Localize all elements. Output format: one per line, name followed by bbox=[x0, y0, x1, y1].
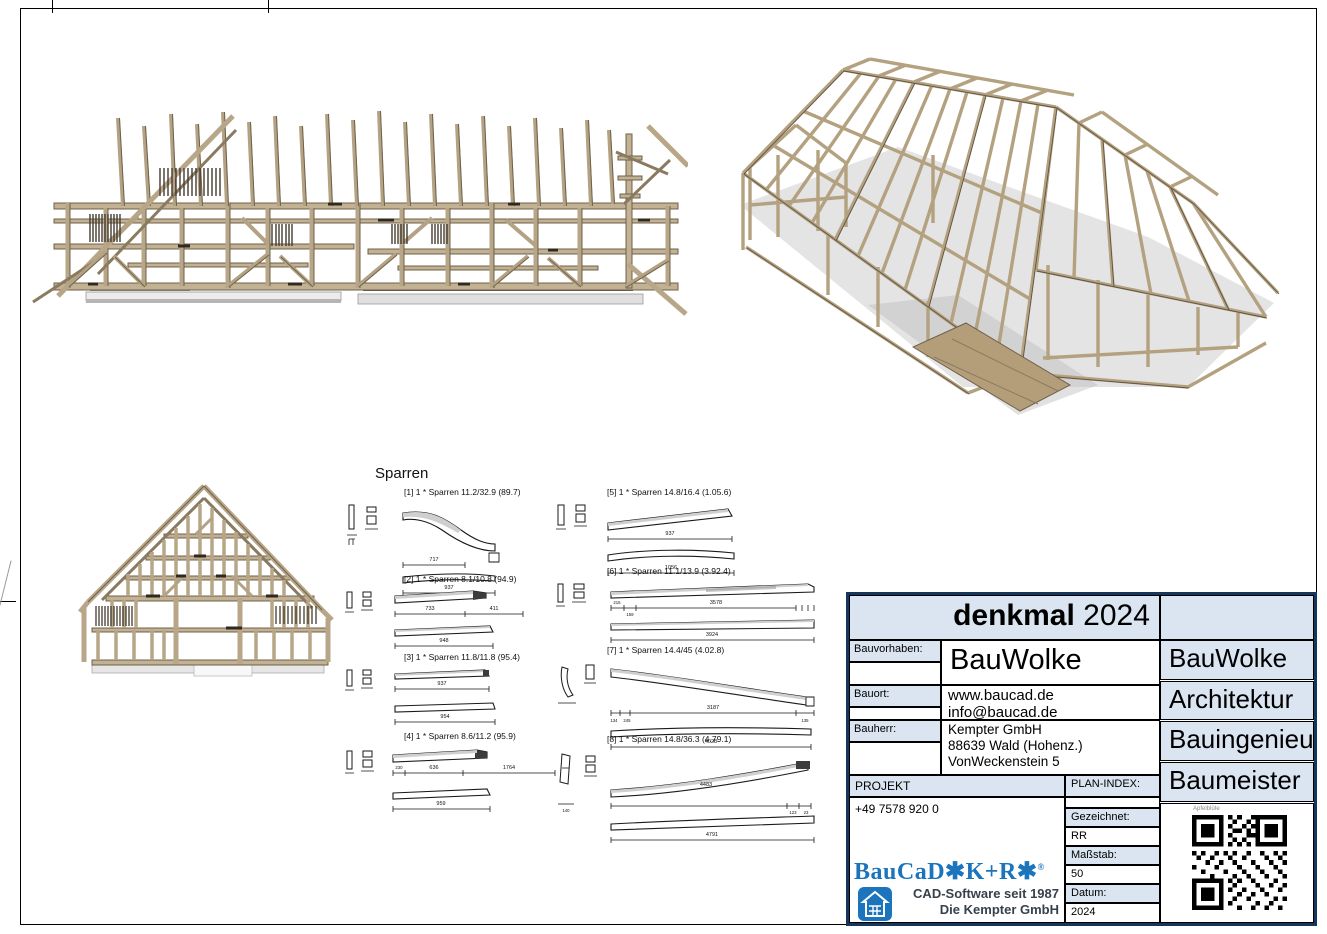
sparren-item-8: [8] 1 * Sparren 14.8/36.3 (4.79.1) 140 4… bbox=[556, 734, 828, 849]
field-value-bauort: www.baucad.de info@baucad.de bbox=[941, 685, 1160, 720]
projekt-area: +49 7578 920 0 BauCaD✱K+R✱® CAD-Software… bbox=[849, 797, 1065, 923]
sparren-item-label: [3] 1 * Sparren 11.8/11.8 (95.4) bbox=[404, 652, 560, 662]
right-col-architektur: Architektur bbox=[1160, 681, 1314, 720]
svg-text:954: 954 bbox=[440, 714, 449, 720]
svg-text:245: 245 bbox=[623, 718, 631, 723]
sparren-sketch-8: 140 4483 123 23 4791 bbox=[556, 744, 828, 844]
bauort-line-1: www.baucad.de bbox=[948, 687, 1153, 704]
title-block: denkmal 2024 Bauvorhaben: BauWolke Bauor… bbox=[846, 592, 1317, 926]
meta-label-massstab: Maßstab: bbox=[1065, 846, 1160, 865]
sparren-item-4: [4] 1 * Sparren 8.6/11.2 (95.9) 230 636 … bbox=[345, 731, 560, 826]
bauort-line-2: info@baucad.de bbox=[948, 704, 1153, 720]
fold-mark-left-slash bbox=[0, 561, 12, 606]
registered-mark: ® bbox=[1037, 862, 1044, 872]
svg-text:134: 134 bbox=[610, 718, 618, 723]
sparren-title: Sparren bbox=[375, 465, 428, 482]
svg-text:3924: 3924 bbox=[706, 632, 718, 638]
side-elevation-render bbox=[28, 56, 688, 318]
svg-text:135: 135 bbox=[801, 718, 809, 723]
svg-text:717: 717 bbox=[429, 557, 438, 563]
field-value-bauvorhaben: BauWolke bbox=[941, 640, 1160, 685]
svg-text:123: 123 bbox=[789, 810, 797, 815]
svg-text:937: 937 bbox=[437, 681, 446, 687]
logo-line-2: Die Kempter GmbH bbox=[898, 902, 1059, 918]
fold-mark-top-left bbox=[52, 0, 53, 13]
project-year: 2024 bbox=[1083, 599, 1150, 632]
field-value-bauherr: Kempter GmbH 88639 Wald (Hohenz.) VonWec… bbox=[941, 720, 1160, 775]
field-bauort-empty bbox=[849, 707, 941, 720]
project-title: denkmal bbox=[953, 599, 1075, 632]
sparren-item-3: [3] 1 * Sparren 11.8/11.8 (95.4) 937 954 bbox=[345, 652, 560, 739]
field-label-bauherr: Bauherr: bbox=[849, 720, 941, 742]
sparren-item-2: [2] 1 * Sparren 8.1/10.8 (94.9) 733 411 … bbox=[345, 574, 560, 661]
sparren-sketch-4: 230 636 1764 959 bbox=[345, 741, 560, 821]
sparren-sketch-2: 733 411 948 bbox=[345, 584, 560, 656]
svg-text:1764: 1764 bbox=[503, 765, 515, 771]
svg-text:733: 733 bbox=[425, 606, 434, 612]
projekt-band: PROJEKT bbox=[849, 775, 1065, 797]
sparren-sketch-6: 215 159 3578 3924 bbox=[556, 576, 828, 652]
gable-elevation-render bbox=[76, 478, 344, 683]
svg-text:636: 636 bbox=[429, 765, 438, 771]
svg-text:3578: 3578 bbox=[710, 600, 722, 606]
svg-text:3187: 3187 bbox=[707, 705, 719, 711]
qr-caption: Apfelblüte bbox=[1193, 806, 1313, 812]
qr-code bbox=[1192, 815, 1287, 910]
field-label-bauvorhaben: Bauvorhaben: bbox=[849, 640, 941, 662]
bauherr-line-3: VonWeckenstein 5 bbox=[948, 754, 1153, 770]
right-col-bauwolke: BauWolke bbox=[1160, 640, 1314, 680]
sparren-item-label: [2] 1 * Sparren 8.1/10.8 (94.9) bbox=[404, 574, 560, 584]
right-col-baumeister: Baumeister bbox=[1160, 762, 1314, 802]
plan-index-value bbox=[1065, 797, 1160, 808]
fold-mark-left bbox=[0, 601, 16, 602]
svg-text:215: 215 bbox=[613, 600, 621, 605]
meta-value-datum: 2024 bbox=[1065, 903, 1160, 923]
sparren-item-6: [6] 1 * Sparren 11.1/13.9 (3.92.4) 215 1… bbox=[556, 566, 828, 657]
svg-text:140: 140 bbox=[562, 808, 570, 813]
svg-text:937: 937 bbox=[665, 531, 674, 537]
field-bauvorhaben-empty bbox=[849, 662, 941, 685]
sparren-item-label: [8] 1 * Sparren 14.8/36.3 (4.79.1) bbox=[607, 734, 828, 744]
right-col-bauingenieur: Bauingenieur bbox=[1160, 721, 1314, 761]
bauherr-line-2: 88639 Wald (Hohenz.) bbox=[948, 738, 1153, 754]
meta-label-gezeichnet: Gezeichnet: bbox=[1065, 808, 1160, 827]
titleblock-header-right bbox=[1160, 595, 1314, 640]
logo-brand-suffix: ✱K+R✱ bbox=[945, 859, 1037, 885]
fold-mark-top-right bbox=[268, 0, 269, 13]
bauherr-line-1: Kempter GmbH bbox=[948, 722, 1153, 738]
phone-number: +49 7578 920 0 bbox=[850, 798, 1064, 820]
field-label-bauort: Bauort: bbox=[849, 685, 941, 707]
svg-text:411: 411 bbox=[490, 606, 499, 612]
meta-label-datum: Datum: bbox=[1065, 884, 1160, 903]
svg-text:4791: 4791 bbox=[706, 832, 718, 838]
svg-text:959: 959 bbox=[436, 801, 445, 807]
baucad-logo: BauCaD✱K+R✱® CAD-Software seit 1987 Die … bbox=[854, 857, 1059, 919]
sparren-item-label: [4] 1 * Sparren 8.6/11.2 (95.9) bbox=[404, 731, 560, 741]
svg-text:948: 948 bbox=[439, 638, 448, 644]
field-bauherr-empty bbox=[849, 742, 941, 775]
titleblock-header: denkmal 2024 bbox=[849, 595, 1160, 640]
sparren-item-label: [7] 1 * Sparren 14.4/45 (4.02.8) bbox=[607, 645, 828, 655]
svg-text:23: 23 bbox=[804, 810, 809, 815]
meta-value-gezeichnet: RR bbox=[1065, 827, 1160, 846]
plan-index-label: PLAN-INDEX: bbox=[1065, 775, 1160, 797]
sparren-item-label: [1] 1 * Sparren 11.2/32.9 (89.7) bbox=[404, 487, 560, 497]
logo-line-1: CAD-Software seit 1987 bbox=[898, 886, 1059, 902]
house-icon bbox=[858, 887, 892, 921]
logo-brand-name: BauCaD bbox=[854, 859, 945, 885]
svg-text:230: 230 bbox=[395, 765, 403, 770]
sparren-sketch-3: 937 954 bbox=[345, 662, 560, 734]
qr-cell: Apfelblüte bbox=[1160, 803, 1314, 923]
sparren-item-label: [6] 1 * Sparren 11.1/13.9 (3.92.4) bbox=[607, 566, 828, 576]
svg-text:159: 159 bbox=[626, 612, 634, 617]
svg-text:4483: 4483 bbox=[700, 782, 712, 788]
meta-value-massstab: 50 bbox=[1065, 865, 1160, 884]
perspective-render bbox=[718, 55, 1323, 440]
plan-sheet: Sparren [1] 1 * Sparren 11.2/32.9 (89.7)… bbox=[0, 0, 1327, 934]
sparren-item-label: [5] 1 * Sparren 14.8/16.4 (1.05.6) bbox=[607, 487, 801, 497]
